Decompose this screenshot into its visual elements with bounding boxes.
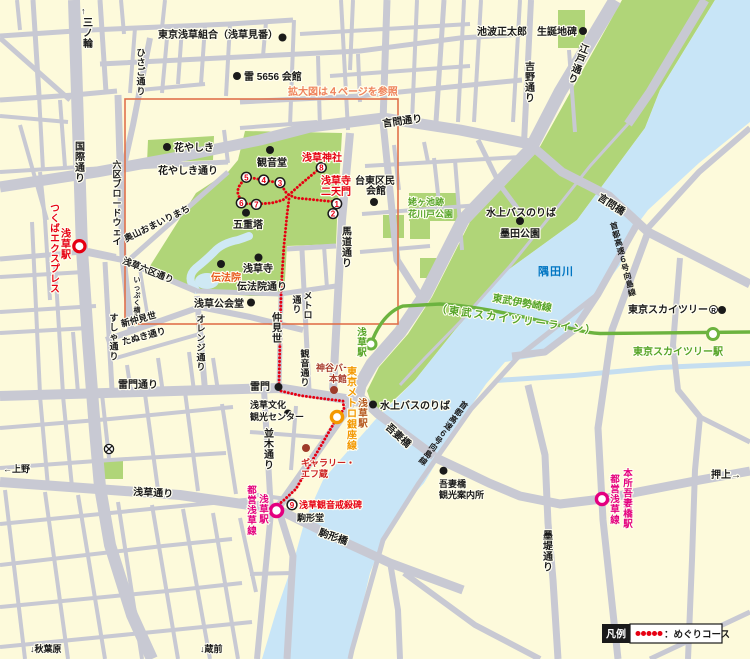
svg-text:吉野通り: 吉野通り — [525, 60, 535, 105]
svg-text:並木通り: 並木通り — [263, 427, 275, 472]
svg-text:5: 5 — [244, 173, 249, 182]
svg-text:R: R — [711, 307, 716, 314]
svg-text:浅草駅: 浅草駅 — [357, 326, 367, 358]
svg-text:墨堤通り: 墨堤通り — [543, 530, 554, 574]
svg-text:都営浅草線: 都営浅草線 — [246, 484, 257, 536]
svg-text:東京浅草組合（浅草見番）: 東京浅草組合（浅草見番） — [158, 28, 278, 41]
svg-text:都営浅草線: 都営浅草線 — [609, 473, 620, 525]
svg-text:3: 3 — [278, 179, 283, 188]
svg-text:東京メトロ銀座線: 東京メトロ銀座線 — [346, 365, 357, 452]
svg-text:駒形堂: 駒形堂 — [296, 512, 324, 523]
svg-text:↑: ↑ — [81, 6, 86, 16]
svg-text:↓蔵前: ↓蔵前 — [200, 643, 223, 654]
svg-text:つくばエクスプレス: つくばエクスプレス — [50, 203, 60, 295]
svg-text:雷 5656 会館: 雷 5656 会館 — [244, 70, 302, 83]
svg-text:すしゃ通り: すしゃ通り — [109, 313, 118, 361]
svg-text:2: 2 — [331, 210, 336, 219]
svg-text:1: 1 — [334, 200, 339, 209]
svg-text:仲見世: 仲見世 — [271, 311, 282, 345]
svg-text:池波正太郎 生誕地碑: 池波正太郎 生誕地碑 — [477, 25, 577, 38]
svg-text:9: 9 — [290, 501, 295, 510]
svg-text:国際通り: 国際通り — [75, 141, 85, 185]
svg-text:メトロ: メトロ — [303, 291, 312, 320]
svg-text:凡例: 凡例 — [606, 628, 626, 641]
svg-text:隅田川: 隅田川 — [538, 264, 574, 278]
svg-text:6: 6 — [239, 199, 244, 208]
svg-text:三ノ輪: 三ノ輪 — [83, 17, 94, 50]
svg-text:観光センター: 観光センター — [250, 411, 304, 422]
svg-text:浅草駅: 浅草駅 — [259, 493, 269, 525]
svg-text:観光案内所: 観光案内所 — [439, 489, 484, 500]
svg-text:オレンジ通り: オレンジ通り — [196, 314, 205, 372]
svg-text:雷門通り: 雷門通り — [118, 379, 158, 391]
svg-text:浅草寺: 浅草寺 — [321, 174, 351, 187]
svg-text:拡大図は４ページを参照: 拡大図は４ページを参照 — [288, 85, 398, 98]
svg-text:六区ブロードウェイ: 六区ブロードウェイ — [112, 159, 121, 247]
svg-text:エフ蔵: エフ蔵 — [301, 468, 328, 479]
svg-text:花やしき通り: 花やしき通り — [158, 164, 218, 177]
svg-text:会館: 会館 — [366, 184, 386, 197]
svg-text:浅草公会堂: 浅草公会堂 — [194, 297, 244, 310]
svg-text:↓秋葉原: ↓秋葉原 — [30, 643, 62, 654]
svg-text:：めぐりコース: ：めぐりコース — [664, 630, 730, 641]
svg-text:東京スカイツリー: 東京スカイツリー — [628, 303, 708, 316]
svg-text:花川戸公園: 花川戸公園 — [408, 208, 453, 219]
svg-text:4: 4 — [261, 176, 266, 185]
svg-text:水上バスのりば: 水上バスのりば — [485, 206, 556, 219]
svg-text:通り: 通り — [292, 294, 301, 315]
svg-text:水上バスのりば: 水上バスのりば — [379, 399, 450, 412]
svg-text:押上→: 押上→ — [711, 468, 741, 481]
svg-text:雷門: 雷門 — [250, 381, 270, 393]
svg-text:7: 7 — [254, 201, 259, 210]
svg-text:浅草観音戒殺碑: 浅草観音戒殺碑 — [299, 499, 362, 510]
svg-text:浅草駅: 浅草駅 — [358, 397, 368, 429]
svg-text:五重塔: 五重塔 — [233, 218, 264, 231]
svg-text:浅草駅: 浅草駅 — [60, 227, 72, 261]
svg-text:馬道通り: 馬道通り — [342, 226, 352, 270]
svg-text:東京スカイツリー駅: 東京スカイツリー駅 — [633, 345, 724, 358]
svg-text:墨田公園: 墨田公園 — [500, 228, 540, 240]
svg-text:8: 8 — [319, 164, 324, 173]
svg-text:二天門: 二天門 — [321, 186, 351, 198]
svg-text:本館: 本館 — [329, 373, 347, 384]
svg-text:本所吾妻橋駅: 本所吾妻橋駅 — [623, 467, 633, 530]
svg-text:伝法院通り: 伝法院通り — [237, 280, 287, 293]
svg-text:ひさご通り: ひさご通り — [136, 48, 146, 96]
svg-text:観音堂: 観音堂 — [257, 156, 287, 169]
svg-text:花やしき: 花やしき — [174, 141, 214, 154]
svg-text:吾妻橋: 吾妻橋 — [439, 478, 467, 489]
svg-text:観音通り: 観音通り — [300, 348, 309, 388]
svg-text:浅草神社: 浅草神社 — [302, 151, 342, 164]
svg-text:←上野: ←上野 — [3, 463, 30, 474]
svg-text:姥ヶ池跡: 姥ヶ池跡 — [407, 196, 444, 207]
svg-text:浅草寺: 浅草寺 — [243, 262, 273, 275]
svg-text:ギャラリー・: ギャラリー・ — [301, 457, 355, 468]
svg-text:浅草文化: 浅草文化 — [250, 399, 286, 410]
